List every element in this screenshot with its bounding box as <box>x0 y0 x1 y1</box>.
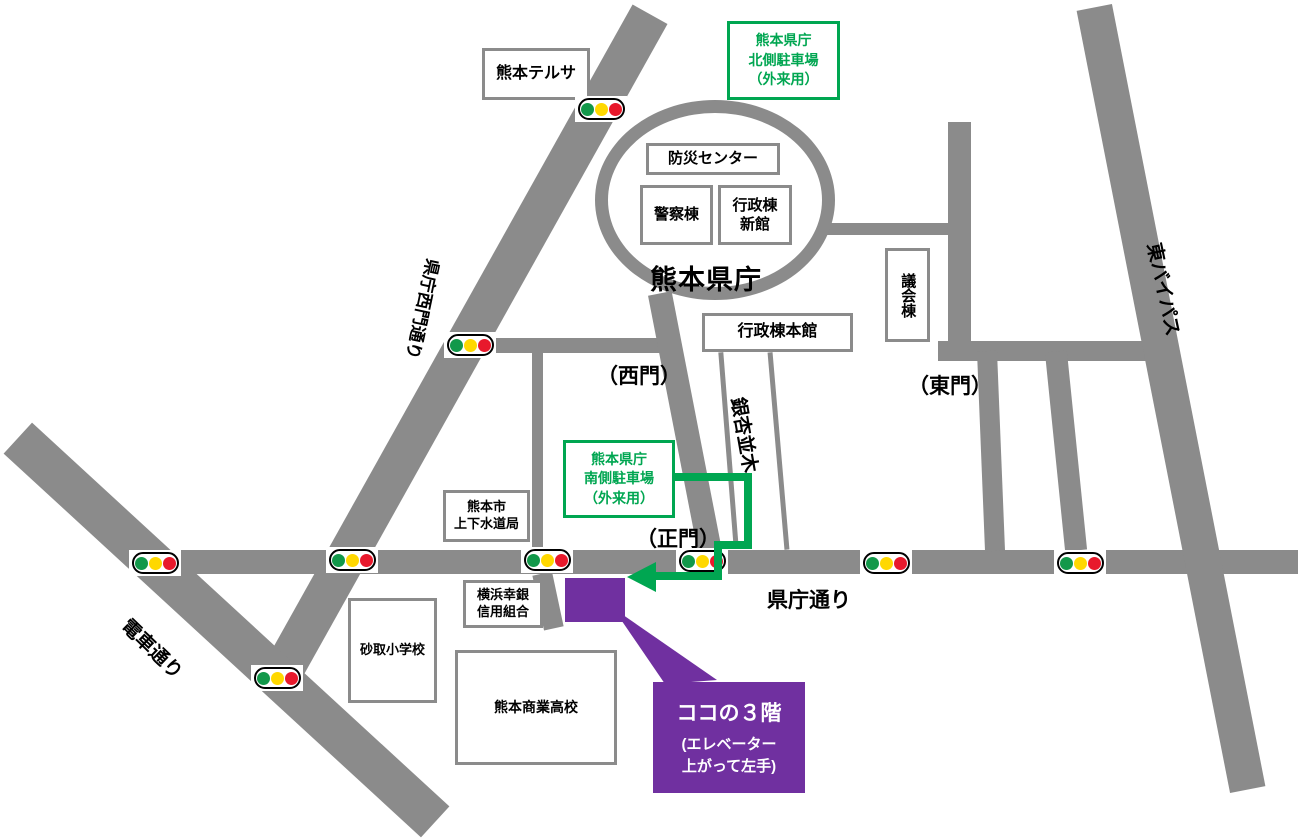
access-map: 熊本テルサ 熊本県庁 北側駐車場 （外来用） 防災センター 警察棟 行政棟 新館… <box>0 0 1298 838</box>
route-segment-from-box <box>675 473 750 481</box>
road-label-kencho-nishimon-street: 県庁西門通り <box>401 257 447 362</box>
traffic-light-icon <box>860 550 912 576</box>
gate-east-label: （東門） <box>908 370 992 400</box>
building-suidoukyoku-line1: 熊本市 <box>467 499 506 516</box>
building-gikai: 議会棟 <box>885 248 930 342</box>
parking-south-line1: 熊本県庁 <box>591 450 647 470</box>
destination-floor-label: ココの３階 <box>677 697 782 727</box>
traffic-light-icon <box>444 332 496 358</box>
building-terrsa: 熊本テルサ <box>482 48 590 100</box>
building-bousai-center: 防災センター <box>646 143 780 175</box>
building-sunatori-school-label: 砂取小学校 <box>360 642 425 659</box>
parking-south-line3: （外来用） <box>584 489 654 509</box>
road-north-east-vertical <box>948 122 971 352</box>
building-terrsa-label: 熊本テルサ <box>496 64 576 85</box>
building-keisatsu: 警察棟 <box>640 185 713 245</box>
ginkgo-avenue-line-east <box>768 352 790 550</box>
building-gyousei-shinkan-line2: 新館 <box>740 215 770 235</box>
road-oval-connector <box>818 223 955 235</box>
traffic-light-icon <box>251 665 303 691</box>
building-shougyou-school-label: 熊本商業高校 <box>494 698 578 716</box>
destination-note-line1: (エレベーター <box>682 734 777 757</box>
destination-note-line2: 上がって左手) <box>682 756 776 779</box>
traffic-light-icon <box>575 96 627 122</box>
building-gyousei-shinkan: 行政棟 新館 <box>718 185 792 245</box>
route-arrow-shaft <box>655 572 722 580</box>
road-label-densha-street: 電車通り <box>116 612 189 684</box>
route-arrow-head <box>627 562 656 592</box>
road-east-vertical-2 <box>1045 350 1087 551</box>
road-west-gate <box>470 338 675 353</box>
destination-building-marker <box>565 578 625 622</box>
parking-south-line2: 南側駐車場 <box>584 469 654 489</box>
building-keisatsu-label: 警察棟 <box>654 205 699 225</box>
parking-south-box: 熊本県庁 南側駐車場 （外来用） <box>563 440 675 518</box>
gate-west-label: （西門） <box>597 360 681 390</box>
traffic-light-icon <box>129 550 181 576</box>
building-yokohama-bank-line2: 信用組合 <box>477 604 529 621</box>
parking-north-line3: （外来用） <box>749 70 819 90</box>
destination-callout: ココの３階 (エレベーター 上がって左手) <box>653 682 805 793</box>
building-shougyou-school: 熊本商業高校 <box>455 650 617 765</box>
building-gyousei-shinkan-line1: 行政棟 <box>732 196 777 216</box>
prefecture-office-label: 熊本県庁 <box>650 258 762 297</box>
building-suidoukyoku: 熊本市 上下水道局 <box>443 490 530 542</box>
traffic-light-icon <box>521 547 573 573</box>
building-yokohama-bank-line1: 横浜幸銀 <box>477 587 529 604</box>
parking-north-box: 熊本県庁 北側駐車場 （外来用） <box>727 21 840 100</box>
road-narrow-west <box>532 350 543 552</box>
building-yokohama-bank: 横浜幸銀 信用組合 <box>463 580 543 628</box>
building-gyousei-honkan: 行政棟本館 <box>702 313 853 352</box>
parking-north-line1: 熊本県庁 <box>756 31 812 51</box>
building-gyousei-honkan-label: 行政棟本館 <box>737 322 817 343</box>
parking-north-line2: 北側駐車場 <box>749 51 819 71</box>
road-higashi-bypass <box>1077 4 1266 793</box>
traffic-light-icon <box>1054 550 1106 576</box>
building-gikai-label: 議会棟 <box>898 273 918 318</box>
traffic-light-icon <box>326 547 378 573</box>
route-segment-down <box>744 473 752 549</box>
building-bousai-label: 防災センター <box>668 149 758 169</box>
building-sunatori-school: 砂取小学校 <box>348 598 437 703</box>
building-suidoukyoku-line2: 上下水道局 <box>454 516 519 533</box>
road-label-kencho-street: 県庁通り <box>767 584 851 614</box>
